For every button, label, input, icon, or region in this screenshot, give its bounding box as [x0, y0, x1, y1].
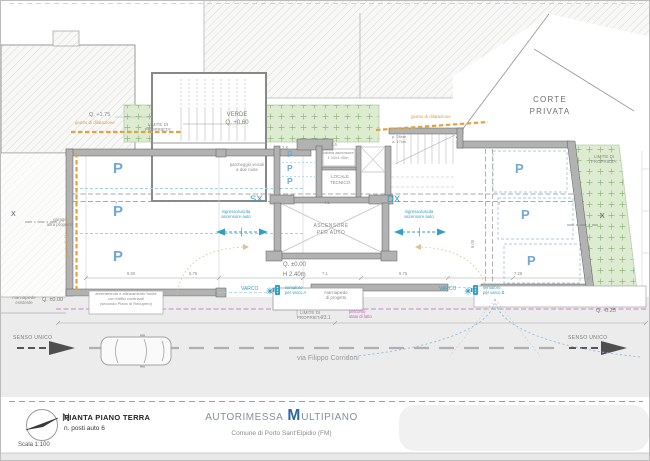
dim-7-28: 7.28	[514, 271, 522, 276]
locale-tecnico-label: LOCALE TECNICO	[321, 174, 359, 185]
parking-spot-5: P	[521, 207, 530, 223]
semaforo-b-label: semaforo per varco B	[483, 285, 504, 295]
p2r-line2: a due ruote	[222, 167, 272, 172]
moto-spot-2: P	[287, 163, 293, 173]
semaforo-b-line2: per varco B	[483, 290, 504, 295]
ingresso-uscita-dx-label: ingresso/uscita ascensore auto	[392, 209, 446, 220]
percorso-line2: stato di fatto	[349, 314, 372, 319]
section-marker-right: X	[600, 213, 605, 221]
verde-line2: Q. +0.60	[209, 120, 265, 128]
verde-line1: VERDE	[209, 112, 265, 120]
marc-esist-line2: esistente	[6, 300, 42, 305]
quota-marciapiede-label: Q. ±0.00	[42, 297, 63, 304]
dim-6-00: 6.00	[470, 240, 475, 248]
quota-zero-text: Q. ±0.00	[283, 260, 306, 270]
gradini-line2: a. 17cm	[392, 139, 406, 144]
marciapiede-esistente-label: marciapiede esistente	[6, 295, 42, 306]
limite-proprieta-right-label: LIMITE DI PROPRIETA'	[581, 154, 627, 165]
dim-7-right: 7	[498, 201, 500, 206]
ascensore-line2: PER AUTO	[301, 230, 361, 237]
limite-proprieta-top-label: LIMITE DI PROPRIETA'	[135, 122, 181, 133]
parking-spot-3: P	[113, 248, 123, 266]
quota-altezza-label: Q. ±0.00 H 2.40m	[283, 260, 306, 280]
cabina-line2: 1.10x1.40m	[317, 155, 359, 160]
drawing-subtitle: n. posti auto 6	[64, 425, 105, 433]
parking-spot-4: P	[515, 161, 524, 177]
dim-6-75: 6.75	[399, 271, 407, 276]
dim-7-left: 7	[115, 201, 117, 206]
senso-unico-left-label: SENSO UNICO	[13, 335, 52, 341]
arretramento-line3: (secondo Piano di Recupero)	[89, 301, 163, 306]
corte-privata-label: CORTE PRIVATA	[505, 94, 595, 118]
corte-privata-line1: CORTE	[505, 94, 595, 106]
dim-2-6: 2.6	[331, 142, 337, 147]
varco-b-star-icon	[465, 288, 472, 295]
altezza-text: H 2.40m	[283, 270, 306, 280]
scale-label: Scala 1:100	[18, 442, 50, 449]
lato-dx-label: DX	[387, 194, 400, 205]
senso-unico-right-label: SENSO UNICO	[568, 335, 607, 341]
corte-privata-line2: PRIVATA	[505, 106, 595, 118]
section-marker-left: X	[11, 211, 16, 219]
arretramento-label: arretramento e allineamento fronte con e…	[89, 291, 163, 307]
project-title-part2: ULTIPIANO	[301, 412, 358, 423]
varco-a-label: VARCO	[241, 286, 258, 292]
project-title: AUTORIMESSA M ULTIPIANO	[199, 407, 364, 425]
verde-label: VERDE Q. +0.60	[209, 112, 265, 127]
marc-prog-line2: di progetto	[315, 295, 357, 300]
dim-fronte-label: 23.1	[321, 315, 331, 321]
cabina-ascensore-label: cabina ascensore 1.10x1.40m	[317, 150, 359, 160]
ingresso-sx-line2: ascensore auto	[209, 214, 263, 219]
garage-line2: altra proprietà	[40, 222, 80, 227]
municipality-label: Comune di Porto Sant'Elpidio (FM)	[199, 430, 364, 438]
architectural-plan-sheet: CORTE PRIVATA VERDE Q. +0.60 LIMITE DI P…	[0, 0, 650, 461]
gradini-label: p. 28cm a. 17cm	[392, 134, 406, 144]
moto-spot-3: P	[287, 176, 293, 186]
dim-5-75: 5.75	[189, 271, 197, 276]
garage-confinante-label: garage altra proprietà	[40, 217, 80, 228]
quota-strada-label: Q. -0.25	[596, 308, 616, 315]
dim-2-8: 2.8	[282, 145, 288, 150]
locale-line2: TECNICO	[321, 180, 359, 186]
project-title-initial: M	[287, 407, 300, 425]
traffic-light-b-icon	[471, 285, 478, 295]
giunto-top-right-label: giunto di dilatazione	[411, 114, 451, 119]
dim-4-5: 4.5	[324, 200, 330, 205]
varco-b-label: VARCO	[439, 286, 456, 292]
varco-a-star-icon	[267, 288, 274, 295]
semaforo-a-label: semaforo per varco A	[285, 285, 306, 295]
dim-6-50: 6.50	[127, 271, 135, 276]
marciapiede-progetto-label: marciapiede di progetto	[315, 290, 357, 301]
moto-spot-1: P	[287, 149, 293, 159]
giunto-top-left-label: giunto di dilatazione	[75, 120, 115, 125]
parking-spot-6: P	[527, 253, 536, 269]
parking-stall-lines	[75, 151, 580, 283]
lato-sx-label: SX	[250, 194, 263, 205]
ingresso-dx-line2: ascensore auto	[392, 214, 446, 219]
project-title-part1: AUTORIMESSA	[205, 412, 283, 423]
parking-spot-1: P	[113, 160, 123, 178]
limite-top-line2: PROPRIETA'	[135, 127, 181, 132]
semaforo-a-line2: per varco A	[285, 290, 306, 295]
lift-access-arrows	[216, 228, 481, 293]
drawing-title: PIANTA PIANO TERRA	[64, 413, 150, 422]
parcheggio-due-ruote-label: parcheggio veicoli a due ruote	[222, 162, 272, 173]
redacted-area	[399, 405, 649, 451]
percorso-label: percorso stato di fatto	[349, 309, 372, 319]
car-icon	[101, 335, 171, 368]
street-name-label: via Filippo Corridoni	[297, 355, 359, 363]
ingresso-uscita-sx-label: ingresso/uscita ascensore auto	[209, 209, 263, 220]
dim-7-1: 7.1	[322, 271, 328, 276]
ascensore-auto-label: ASCENSORE PER AUTO	[301, 223, 361, 236]
north-compass-icon	[26, 410, 58, 441]
limite-right-line2: PROPRIETA'	[581, 159, 627, 164]
quota-esistente-label: Q. +1.75	[89, 112, 110, 119]
